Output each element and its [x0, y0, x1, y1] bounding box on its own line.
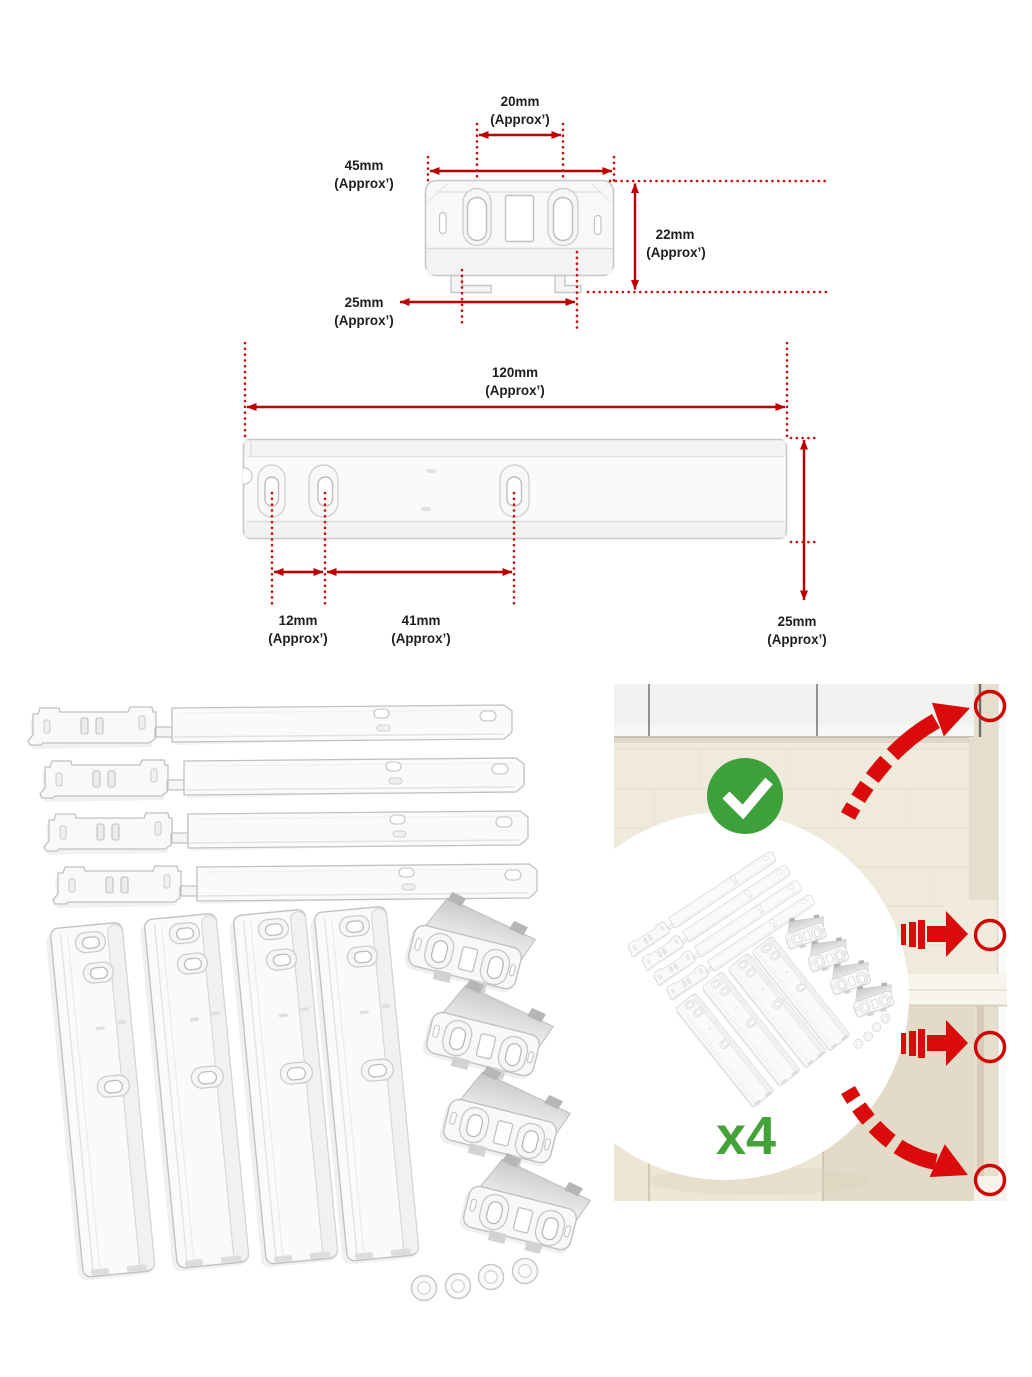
- svg-text:20mm: 20mm: [501, 94, 540, 109]
- svg-text:45mm: 45mm: [345, 158, 384, 173]
- svg-text:(Approx’): (Approx’): [391, 631, 451, 646]
- svg-text:(Approx’): (Approx’): [485, 383, 545, 398]
- svg-text:(Approx’): (Approx’): [334, 313, 394, 328]
- svg-text:22mm: 22mm: [656, 227, 695, 242]
- svg-text:(Approx’): (Approx’): [490, 112, 550, 127]
- svg-text:(Approx’): (Approx’): [767, 632, 827, 647]
- svg-text:41mm: 41mm: [402, 613, 441, 628]
- svg-text:120mm: 120mm: [492, 365, 538, 380]
- svg-text:(Approx’): (Approx’): [646, 245, 706, 260]
- svg-text:12mm: 12mm: [279, 613, 318, 628]
- svg-text:25mm: 25mm: [345, 295, 384, 310]
- svg-text:x4: x4: [716, 1106, 776, 1166]
- svg-text:(Approx’): (Approx’): [268, 631, 328, 646]
- svg-text:(Approx’): (Approx’): [334, 176, 394, 191]
- svg-text:25mm: 25mm: [778, 614, 817, 629]
